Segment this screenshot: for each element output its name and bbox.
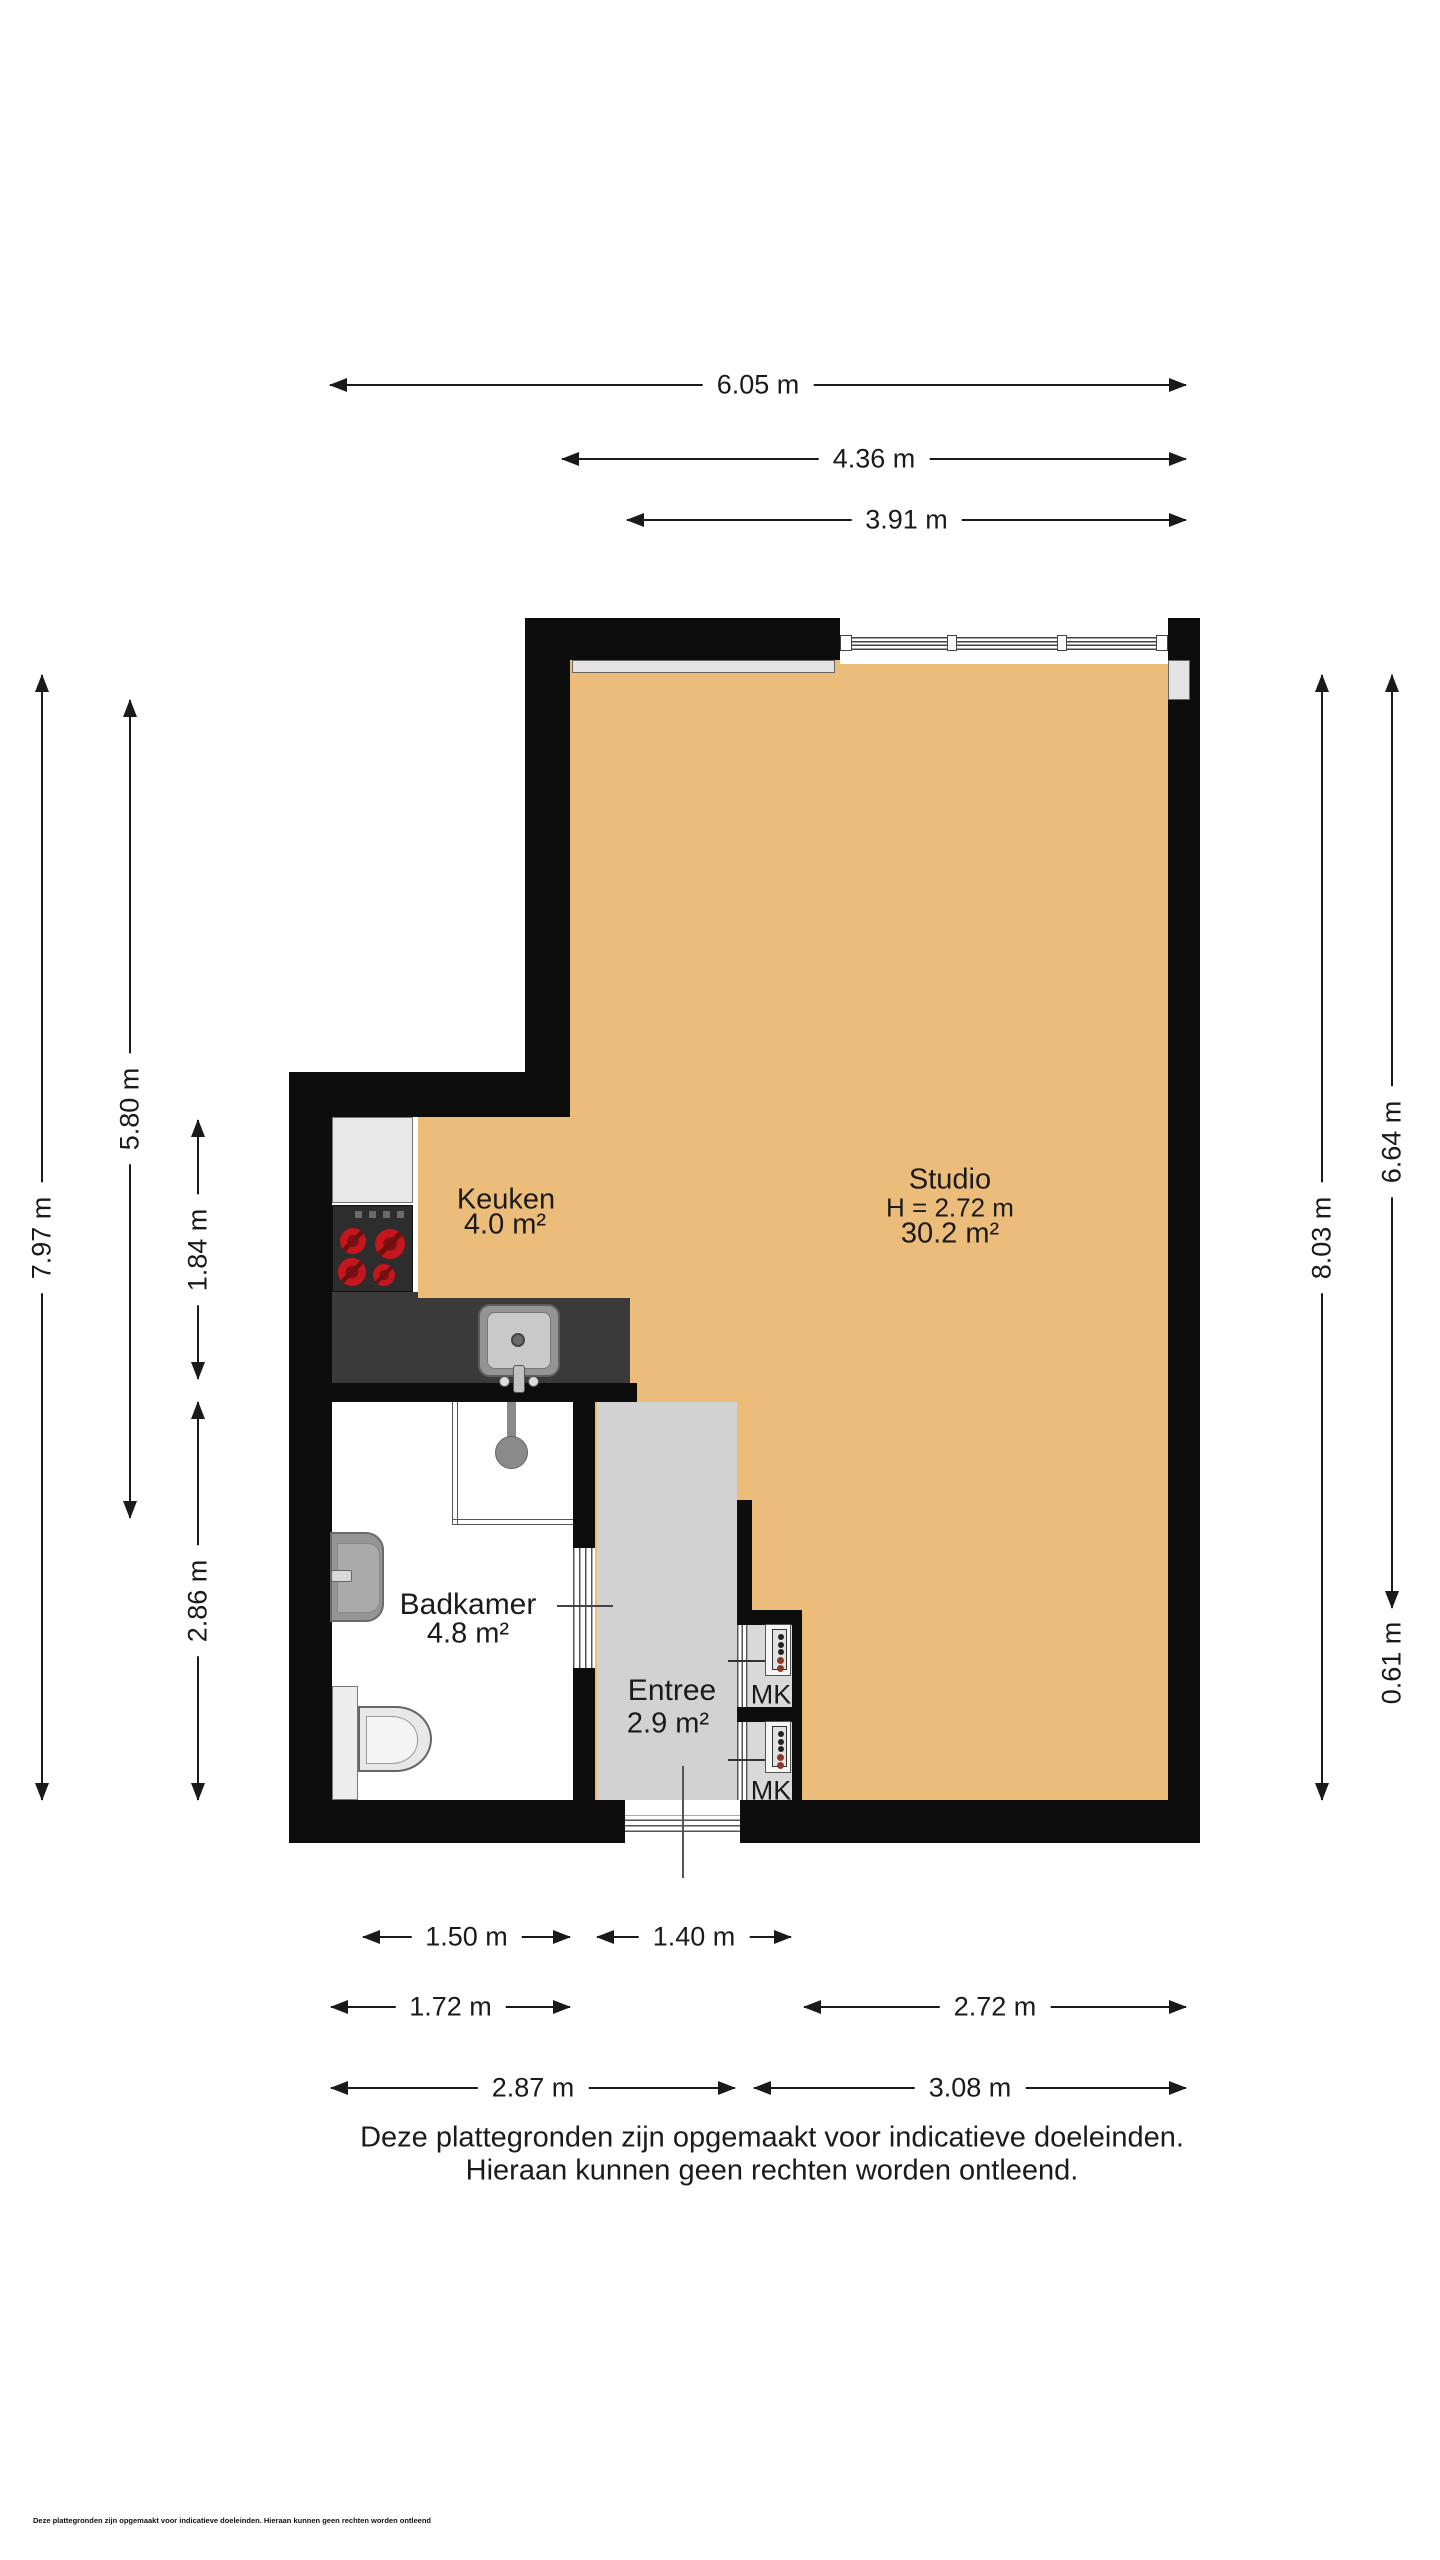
arrow-up-icon [1385, 674, 1399, 692]
kitchen-cabinet [332, 1117, 413, 1203]
mk1-leader-line [728, 1660, 765, 1662]
kitchen-faucet-handle [528, 1376, 539, 1387]
top-wall [525, 618, 840, 660]
arrow-left-icon [561, 452, 579, 466]
shower-arm [507, 1402, 516, 1438]
dim-label: 8.03 m [1301, 1182, 1344, 1293]
cooktop-icon [332, 1205, 413, 1292]
arrow-up-icon [1315, 674, 1329, 692]
arrow-left-icon [753, 2081, 771, 2095]
arrow-up-icon [123, 699, 137, 717]
dim-bottom-140: 1.40 m [597, 1936, 791, 1938]
arrow-right-icon [1169, 2000, 1187, 2014]
arrow-right-icon [1169, 378, 1187, 392]
meter-dot [778, 1739, 784, 1745]
meter-dot [778, 1746, 784, 1752]
kitchen-faucet-handle [499, 1376, 510, 1387]
dim-bottom-287: 2.87 m [331, 2087, 735, 2089]
arrow-up-icon [35, 674, 49, 692]
meter-dot-red [777, 1657, 784, 1664]
shower-head-icon [495, 1436, 528, 1469]
badkamer-north-wall [332, 1383, 637, 1402]
arrow-right-icon [718, 2081, 736, 2095]
arrow-down-icon [123, 1501, 137, 1519]
arrow-down-icon [1385, 1591, 1399, 1609]
burner-icon [373, 1264, 395, 1286]
window-frame-left [840, 635, 852, 651]
dim-label: 1.40 m [639, 1922, 750, 1953]
arrow-up-icon [191, 1119, 205, 1137]
room-area-badkamer: 4.8 m² [427, 1618, 509, 1651]
arrow-left-icon [803, 2000, 821, 2014]
dim-label: 6.64 m [1371, 1086, 1414, 1197]
dim-label: 2.87 m [478, 2073, 589, 2104]
burner-icon [375, 1229, 405, 1259]
dim-left-286: 2.86 m [197, 1402, 199, 1800]
room-label-mk2: MK [751, 1776, 792, 1807]
arrow-left-icon [362, 1930, 380, 1944]
meter-dot [778, 1642, 784, 1648]
arrow-up-icon [191, 1401, 205, 1419]
meter-dot-red [777, 1665, 784, 1672]
kitchen-faucet-icon [513, 1365, 525, 1393]
dim-left-580: 5.80 m [129, 700, 131, 1518]
meter-dot-red [777, 1762, 784, 1769]
bottom-wall-left [289, 1800, 625, 1843]
mk2-door-lines [737, 1722, 748, 1800]
dim-bottom-308: 3.08 m [754, 2087, 1186, 2089]
mk2-leader-line [728, 1759, 765, 1761]
floorplan-page: Keuken 4.0 m² Studio H = 2.72 m 30.2 m² … [0, 0, 1440, 2560]
mk-stub-wall [737, 1500, 752, 1610]
disclaimer-line-1: Deze plattegronden zijn opgemaakt voor i… [360, 2122, 1184, 2155]
front-door-swing-line [682, 1766, 684, 1878]
dim-label: 5.80 m [109, 1054, 152, 1165]
toilet-bowl-icon [358, 1706, 432, 1772]
dim-top-436: 4.36 m [562, 458, 1186, 460]
arrow-right-icon [1169, 452, 1187, 466]
arrow-right-icon [553, 2000, 571, 2014]
sink-drain [511, 1333, 525, 1347]
badkamer-east-wall-upper [573, 1402, 595, 1548]
meter-dot [778, 1731, 784, 1737]
arrow-right-icon [774, 1930, 792, 1944]
dim-label: 3.08 m [915, 2073, 1026, 2104]
cooktop-knob-row [355, 1211, 407, 1218]
dim-label: 4.36 m [819, 444, 930, 475]
dim-label: 1.84 m [177, 1194, 220, 1305]
arrow-down-icon [191, 1362, 205, 1380]
disclaimer-line-2: Hieraan kunnen geen rechten worden ontle… [466, 2155, 1079, 2188]
badkamer-door-leaf-line [557, 1605, 613, 1607]
dim-bottom-150: 1.50 m [363, 1936, 570, 1938]
meter-dot-red [777, 1754, 784, 1761]
step-wall [289, 1072, 570, 1117]
badkamer-door-threshold [573, 1548, 595, 1668]
room-label-mk1: MK [751, 1680, 792, 1711]
dim-label: 3.91 m [851, 505, 962, 536]
dim-left-184: 1.84 m [197, 1120, 199, 1379]
arrow-down-icon [35, 1783, 49, 1801]
fine-print: Deze plattegronden zijn opgemaakt voor i… [33, 2516, 431, 2525]
counter-column [332, 1292, 418, 1383]
badkamer-east-wall-lower [573, 1668, 595, 1800]
dim-label: 2.72 m [940, 1992, 1051, 2023]
dim-right-803: 8.03 m [1321, 675, 1323, 1800]
right-wall [1168, 618, 1200, 1843]
dim-top-605: 6.05 m [330, 384, 1186, 386]
dim-label: 7.97 m [21, 1182, 64, 1293]
arrow-right-icon [553, 1930, 571, 1944]
arrow-left-icon [329, 378, 347, 392]
toilet-cistern [332, 1686, 358, 1800]
meter-dot [778, 1649, 784, 1655]
dim-bottom-172: 1.72 m [331, 2006, 570, 2008]
window-mullion-2 [1057, 635, 1067, 651]
right-wall-niche [1168, 660, 1190, 700]
toilet-bowl-inner [366, 1716, 418, 1764]
arrow-left-icon [330, 2000, 348, 2014]
dim-top-391: 3.91 m [627, 519, 1186, 521]
dim-bottom-272: 2.72 m [804, 2006, 1186, 2008]
burner-icon [338, 1258, 366, 1286]
arrow-left-icon [330, 2081, 348, 2095]
dim-label: 1.50 m [411, 1922, 522, 1953]
arrow-right-icon [1169, 513, 1187, 527]
dim-left-797: 7.97 m [41, 675, 43, 1800]
arrow-down-icon [1315, 1783, 1329, 1801]
window-understrip [840, 648, 1168, 664]
meter-dot [778, 1634, 784, 1640]
mk1-door-lines [737, 1625, 748, 1707]
mk-top-wall [737, 1610, 802, 1625]
bathroom-faucet-icon [331, 1570, 352, 1582]
dim-right-061: 0.61 m [1373, 1612, 1412, 1715]
window-sill-strip [572, 660, 835, 673]
room-area-studio: 30.2 m² [901, 1218, 999, 1251]
room-area-keuken: 4.0 m² [464, 1209, 546, 1242]
shower-enclosure-left [452, 1402, 458, 1525]
arrow-left-icon [596, 1930, 614, 1944]
window-glass-lines [850, 637, 1160, 650]
room-area-entree: 2.9 m² [627, 1708, 709, 1741]
dim-right-664: 6.64 m [1391, 675, 1393, 1608]
shower-enclosure-bottom [452, 1519, 573, 1525]
dim-label: 1.72 m [395, 1992, 506, 2023]
left-wall-lower [289, 1117, 332, 1843]
window-mullion-1 [947, 635, 957, 651]
left-wall-upper [525, 618, 570, 1072]
dim-label: 2.86 m [177, 1546, 220, 1657]
arrow-down-icon [191, 1783, 205, 1801]
arrow-right-icon [1169, 2081, 1187, 2095]
arrow-left-icon [626, 513, 644, 527]
burner-icon [340, 1228, 366, 1254]
window-frame-right [1156, 635, 1168, 651]
room-label-entree: Entree [628, 1674, 716, 1708]
dim-label: 6.05 m [703, 370, 814, 401]
bottom-wall-right [740, 1800, 1200, 1843]
